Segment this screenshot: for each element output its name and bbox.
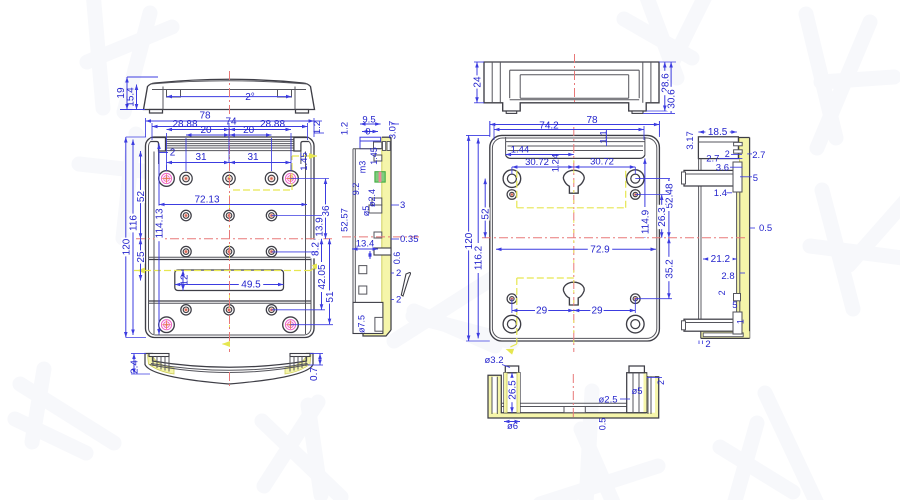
- svg-text:2°: 2°: [245, 92, 255, 103]
- svg-text:0.5: 0.5: [598, 418, 608, 431]
- svg-text:0.6: 0.6: [392, 252, 402, 265]
- svg-text:0.7: 0.7: [309, 367, 320, 381]
- svg-text:30.72: 30.72: [590, 157, 614, 168]
- svg-text:ø5: ø5: [361, 206, 371, 217]
- svg-text:5: 5: [753, 173, 758, 184]
- svg-text:12: 12: [180, 274, 191, 286]
- svg-text:9: 9: [365, 127, 370, 138]
- svg-text:49.5: 49.5: [241, 280, 261, 291]
- svg-text:3: 3: [400, 200, 405, 211]
- svg-text:2: 2: [396, 268, 401, 279]
- svg-text:30.72: 30.72: [525, 157, 549, 168]
- svg-text:2.4: 2.4: [130, 360, 141, 374]
- svg-text:1.45: 1.45: [369, 147, 379, 165]
- svg-text:74: 74: [225, 116, 237, 127]
- svg-text:1.2: 1.2: [312, 121, 323, 134]
- svg-text:9.5: 9.5: [362, 115, 375, 126]
- svg-text:20: 20: [243, 125, 255, 136]
- svg-text:51: 51: [325, 291, 336, 303]
- svg-text:1.2: 1.2: [340, 122, 351, 135]
- svg-text:2: 2: [705, 339, 710, 350]
- svg-text:31: 31: [247, 152, 259, 163]
- svg-text:28.88: 28.88: [260, 119, 285, 130]
- svg-text:0.35: 0.35: [400, 234, 419, 245]
- svg-text:5: 5: [732, 300, 737, 310]
- svg-text:13.9: 13.9: [315, 217, 326, 237]
- svg-text:29: 29: [536, 306, 548, 317]
- svg-text:52.48: 52.48: [664, 183, 675, 208]
- svg-text:42.05: 42.05: [317, 264, 328, 289]
- svg-text:52: 52: [136, 191, 147, 203]
- svg-text:2: 2: [656, 380, 666, 385]
- svg-text:9.2: 9.2: [351, 183, 361, 196]
- svg-text:78: 78: [199, 111, 211, 122]
- svg-text:ø3.2: ø3.2: [484, 355, 503, 366]
- svg-text:29: 29: [591, 306, 603, 317]
- svg-text:114.13: 114.13: [155, 208, 166, 238]
- svg-text:ø2.5: ø2.5: [598, 395, 617, 406]
- svg-text:20: 20: [200, 125, 212, 136]
- svg-text:35.2: 35.2: [664, 259, 675, 279]
- svg-text:13.4: 13.4: [356, 239, 375, 250]
- svg-text:78: 78: [586, 115, 598, 126]
- svg-text:2: 2: [396, 295, 401, 306]
- svg-text:114.9: 114.9: [640, 209, 651, 234]
- svg-text:2.7: 2.7: [752, 150, 765, 161]
- svg-text:3.07: 3.07: [388, 121, 399, 140]
- svg-text:2: 2: [717, 290, 727, 295]
- svg-text:1.45: 1.45: [299, 152, 310, 171]
- svg-text:18.5: 18.5: [708, 127, 728, 138]
- svg-text:2: 2: [725, 149, 730, 159]
- svg-text:120: 120: [121, 238, 132, 255]
- svg-text:28.88: 28.88: [172, 119, 197, 130]
- svg-text:116.2: 116.2: [474, 245, 485, 270]
- svg-text:26.3: 26.3: [657, 207, 668, 227]
- svg-text:ø7.5: ø7.5: [357, 315, 367, 333]
- svg-text:1.4: 1.4: [714, 188, 727, 199]
- svg-text:0.5: 0.5: [759, 223, 772, 234]
- svg-text:26.5: 26.5: [508, 380, 519, 400]
- svg-text:m3: m3: [358, 161, 368, 174]
- svg-text:1.44: 1.44: [511, 145, 530, 156]
- svg-text:1.1: 1.1: [599, 130, 610, 143]
- svg-text:24: 24: [473, 76, 484, 88]
- svg-text:72.9: 72.9: [590, 245, 610, 256]
- svg-text:116: 116: [129, 215, 140, 231]
- svg-text:72.13: 72.13: [194, 195, 219, 206]
- svg-text:74.2: 74.2: [539, 121, 559, 132]
- svg-text:1.24: 1.24: [551, 154, 562, 173]
- svg-text:31: 31: [195, 152, 207, 163]
- svg-text:ø2.4: ø2.4: [367, 189, 377, 207]
- svg-text:30.6: 30.6: [667, 89, 678, 109]
- svg-text:52.57: 52.57: [340, 208, 351, 232]
- svg-text:ø5: ø5: [631, 386, 642, 397]
- svg-text:1: 1: [736, 319, 746, 324]
- svg-text:2.8: 2.8: [721, 271, 734, 282]
- svg-text:25: 25: [136, 251, 147, 263]
- svg-text:3.17: 3.17: [685, 131, 696, 150]
- svg-text:15.4: 15.4: [126, 87, 137, 107]
- svg-text:ø6: ø6: [507, 421, 518, 432]
- svg-text:52: 52: [481, 208, 492, 220]
- svg-text:2: 2: [170, 148, 176, 159]
- svg-text:3.6: 3.6: [716, 162, 729, 173]
- svg-text:21.2: 21.2: [711, 254, 731, 265]
